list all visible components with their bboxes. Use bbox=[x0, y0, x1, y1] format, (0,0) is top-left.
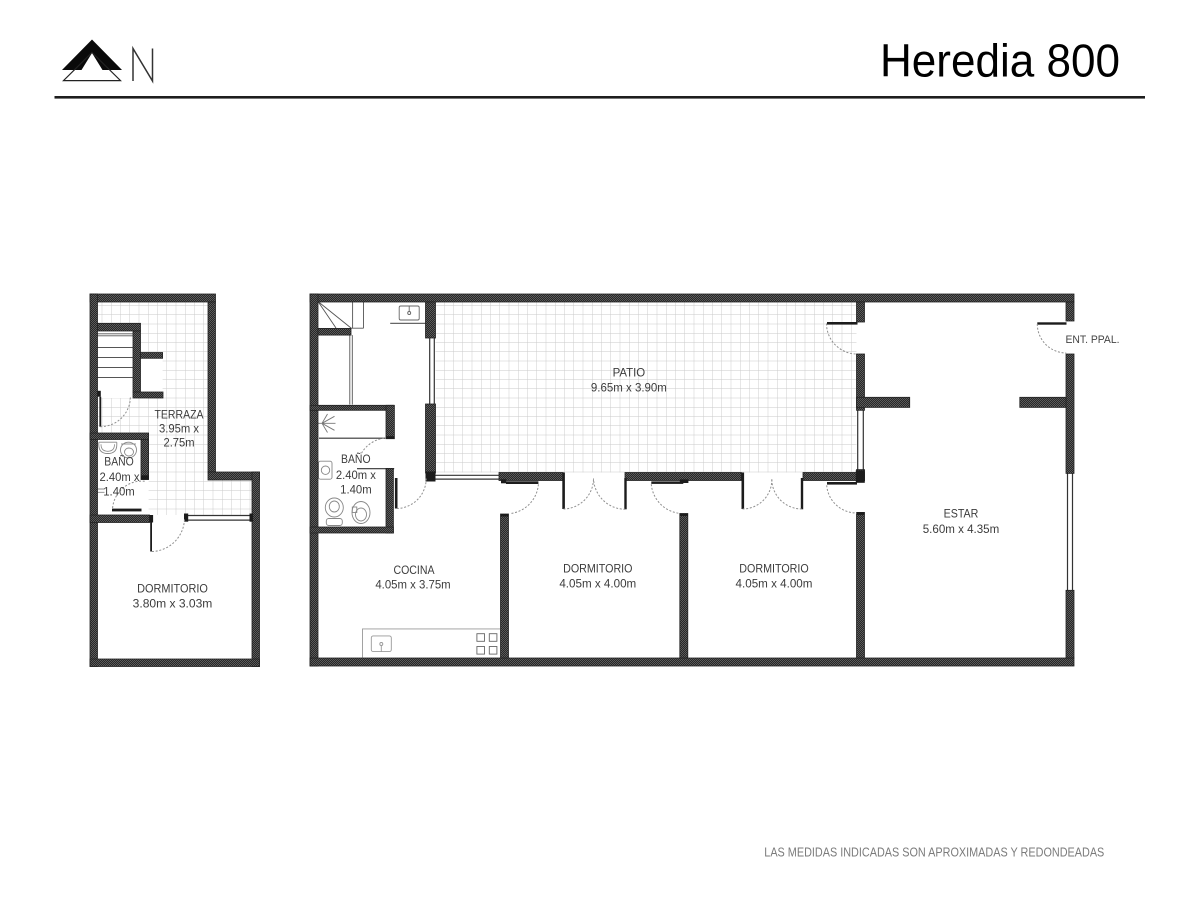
svg-text:DORMITORIO: DORMITORIO bbox=[137, 582, 208, 596]
svg-text:DORMITORIO: DORMITORIO bbox=[739, 562, 808, 576]
svg-text:5.60m x 4.35m: 5.60m x 4.35m bbox=[923, 522, 1000, 536]
svg-text:9.65m x 3.90m: 9.65m x 3.90m bbox=[591, 381, 667, 395]
svg-text:4.05m x 4.00m: 4.05m x 4.00m bbox=[736, 577, 813, 591]
svg-text:ESTAR: ESTAR bbox=[944, 507, 979, 521]
svg-text:ENT. PPAL.: ENT. PPAL. bbox=[1066, 334, 1120, 346]
svg-text:2.40m x: 2.40m x bbox=[100, 470, 140, 484]
svg-text:3.95m x: 3.95m x bbox=[159, 422, 199, 436]
svg-text:3.80m x 3.03m: 3.80m x 3.03m bbox=[133, 597, 213, 611]
svg-text:TERRAZA: TERRAZA bbox=[155, 408, 205, 422]
svg-text:1.40m: 1.40m bbox=[340, 482, 372, 496]
svg-text:LAS MEDIDAS INDICADAS SON APRO: LAS MEDIDAS INDICADAS SON APROXIMADAS Y … bbox=[764, 845, 1104, 860]
svg-text:DORMITORIO: DORMITORIO bbox=[563, 562, 632, 576]
svg-text:4.05m x 3.75m: 4.05m x 3.75m bbox=[375, 578, 450, 592]
svg-text:1.40m: 1.40m bbox=[103, 485, 135, 499]
svg-text:2.40m x: 2.40m x bbox=[336, 468, 376, 482]
svg-text:BAÑO: BAÑO bbox=[104, 455, 134, 469]
svg-text:4.05m x 4.00m: 4.05m x 4.00m bbox=[559, 577, 636, 591]
svg-text:BAÑO: BAÑO bbox=[341, 452, 371, 466]
svg-text:2.75m: 2.75m bbox=[164, 436, 195, 450]
svg-text:PATIO: PATIO bbox=[613, 365, 646, 379]
svg-text:COCINA: COCINA bbox=[394, 563, 436, 577]
svg-text:Heredia 800: Heredia 800 bbox=[880, 35, 1120, 87]
